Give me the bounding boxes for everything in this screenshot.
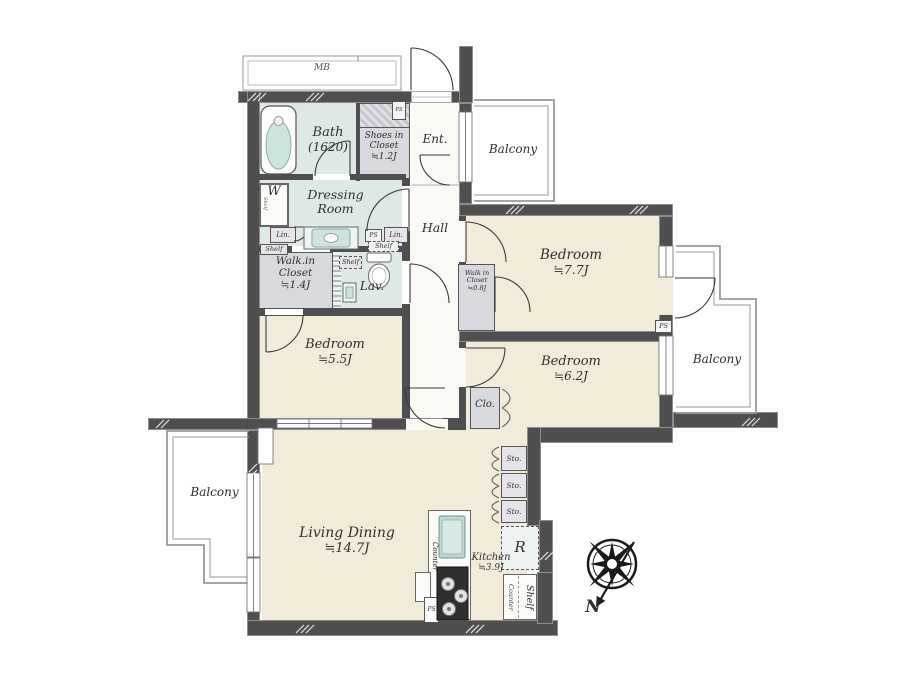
bedroom3-door-opening <box>459 348 466 387</box>
wall-left-lower <box>247 430 260 622</box>
bedroom-3-size: ≒6.2J <box>486 370 656 384</box>
shelf-box-2: Shelf <box>339 256 362 269</box>
bedroom-3-label: Bedroom ≒6.2J <box>486 355 656 383</box>
balcony-right-label: Balcony <box>676 353 758 367</box>
kitchen-name: Kitchen <box>463 552 519 563</box>
shelf-counter-box: Counter Shelf <box>503 574 537 620</box>
bedroom-2-name: Bedroom <box>262 338 408 353</box>
wic-opening <box>292 246 330 252</box>
ps-box-right: PS <box>655 320 672 333</box>
bedroom1-door-opening <box>459 221 466 262</box>
bedroom-3-name: Bedroom <box>486 355 656 370</box>
wic-small-size: ≒0.8J <box>459 285 495 292</box>
balcony-door-opening <box>659 277 673 315</box>
bath-label: Bath (1620) <box>296 126 360 154</box>
bedroom-1-label: Bedroom ≒7.7J <box>486 248 656 278</box>
wall-se-v1 <box>527 427 541 526</box>
bedroom-2-label: Bedroom ≒5.5J <box>262 338 408 366</box>
wall-se-v2 <box>539 520 553 576</box>
living-dining-size: ≒14.7J <box>262 542 432 557</box>
shelf-box-1: Shelf <box>260 244 288 255</box>
wic-main-size: ≒1.4J <box>258 280 333 292</box>
storage-box-1: Sto. <box>501 446 527 471</box>
wall-balcony-right-base <box>673 412 778 428</box>
wic-small-label: Walk in Closet ≒0.8J <box>459 270 495 292</box>
balcony-top-label: Balcony <box>470 143 556 157</box>
floor-plan: W Shelf Lin. Lin. PS Shelf Shelf Shelf P… <box>0 0 920 690</box>
dressing-line1: Dressing <box>278 188 393 202</box>
linen-box-1: Lin. <box>270 227 296 243</box>
bedroom-1-name: Bedroom <box>486 248 656 263</box>
counter-label-right: Counter <box>504 576 519 618</box>
dressing-room-label: Dressing Room <box>278 188 393 217</box>
ps-box-top: PS <box>392 101 406 120</box>
entrance-door <box>411 48 453 90</box>
shoes-closet-line1: Shoes in <box>357 131 411 141</box>
bedroom-1-size: ≒7.7J <box>486 263 656 277</box>
storage-box-2: Sto. <box>501 473 527 498</box>
washer-shelf-label: Shelf <box>260 189 269 219</box>
balcony-door <box>675 278 715 318</box>
bath-name: Bath <box>296 126 360 141</box>
bath-door-opening <box>313 174 350 180</box>
wall-entry-spur <box>459 46 473 103</box>
entrance-label: Ent. <box>410 133 460 147</box>
wall-se-top <box>527 427 673 443</box>
entrance-opening <box>411 91 452 103</box>
bedroom2-door-opening <box>265 309 303 315</box>
wall-bedroom1-top <box>459 204 673 216</box>
dressing-line2: Room <box>278 202 393 216</box>
wall-bedrooms-mid <box>459 331 673 342</box>
closet-label: Clo. <box>469 399 501 410</box>
shelf-label-right: Shelf <box>520 576 537 618</box>
dressing-door-opening <box>402 186 410 231</box>
shelf-box-3: Shelf <box>368 241 399 252</box>
kitchen-size: ≒3.9J <box>463 563 519 573</box>
hall-ld-opening <box>406 419 448 430</box>
bedroom-2-size: ≒5.5J <box>262 353 408 367</box>
ps-box-kitchen: PS <box>424 597 439 623</box>
wic-main-label: Walk.in Closet ≒1.4J <box>258 256 333 292</box>
lav-door-opening <box>402 261 410 304</box>
shoes-closet-label: Shoes in Closet ≒1.2J <box>357 131 411 162</box>
balcony-left-label: Balcony <box>172 486 257 500</box>
wall-bottom <box>247 620 558 636</box>
shoes-closet-size: ≒1.2J <box>357 152 411 162</box>
living-dining-label: Living Dining ≒14.7J <box>262 526 432 557</box>
hall-label: Hall <box>410 221 460 235</box>
lavatory-label: Lav. <box>343 280 401 294</box>
meter-box-label: MB <box>243 63 401 73</box>
bath-size: (1620) <box>296 141 360 155</box>
storage-box-3: Sto. <box>501 500 527 523</box>
living-dining-name: Living Dining <box>262 526 432 542</box>
wall-se-v3 <box>537 572 553 624</box>
shoes-closet-line2: Closet <box>357 141 411 151</box>
compass-north-label: N <box>580 598 606 617</box>
kitchen-label: Kitchen ≒3.9J <box>463 552 519 574</box>
